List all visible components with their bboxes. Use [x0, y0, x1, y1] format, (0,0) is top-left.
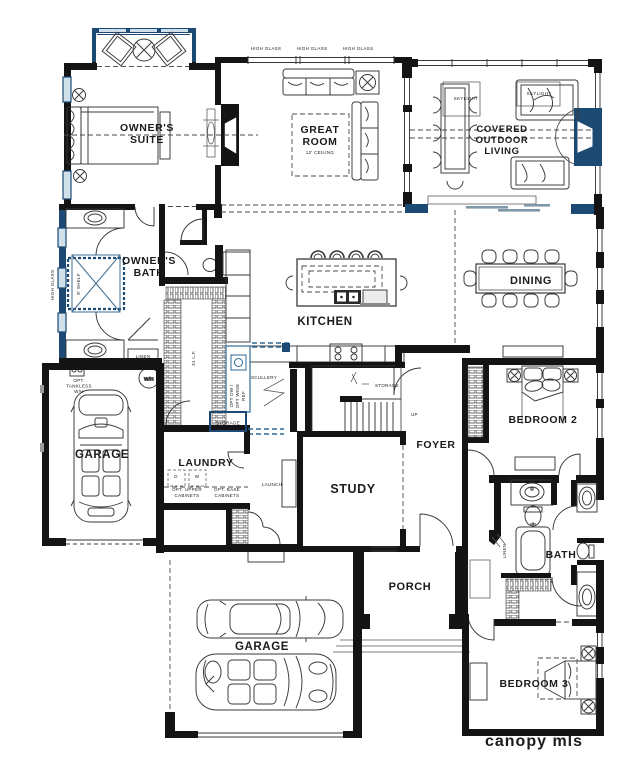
svg-text:LAUNCH: LAUNCH — [262, 482, 282, 487]
svg-text:PORCH: PORCH — [389, 581, 432, 593]
svg-text:CABINETS: CABINETS — [175, 493, 200, 498]
svg-text:LAUNDRY: LAUNDRY — [178, 457, 233, 469]
svg-text:TANKLESS: TANKLESS — [66, 384, 92, 389]
svg-text:OPT. BASE: OPT. BASE — [214, 487, 240, 492]
svg-text:W: W — [195, 474, 200, 479]
svg-text:31 L.F.: 31 L.F. — [191, 350, 196, 366]
svg-text:OUTDOOR: OUTDOOR — [476, 135, 529, 146]
svg-text:GREAT: GREAT — [301, 124, 340, 136]
svg-text:FOYER: FOYER — [416, 439, 455, 451]
svg-text:LINEN: LINEN — [502, 544, 507, 559]
svg-text:W/H: W/H — [144, 377, 154, 382]
svg-text:HIGH GLASS: HIGH GLASS — [251, 46, 282, 51]
svg-text:SKYLIGHT: SKYLIGHT — [454, 96, 479, 101]
svg-text:STORAGE: STORAGE — [375, 383, 399, 388]
svg-text:GARAGE: GARAGE — [235, 641, 289, 653]
svg-text:GARAGE: GARAGE — [75, 449, 129, 461]
svg-text:HIGH GLASS: HIGH GLASS — [297, 46, 328, 51]
svg-text:BATH: BATH — [134, 267, 165, 279]
svg-text:SCULLERY: SCULLERY — [251, 375, 277, 380]
svg-text:SUITE: SUITE — [130, 134, 164, 146]
svg-text:OPT DW /: OPT DW / — [229, 384, 234, 407]
svg-text:DINING: DINING — [510, 275, 552, 287]
svg-text:KITCHEN: KITCHEN — [297, 316, 352, 328]
svg-text:OPT. UPPER: OPT. UPPER — [172, 487, 202, 492]
svg-text:HIGH GLASS: HIGH GLASS — [50, 270, 55, 301]
svg-text:BATH: BATH — [546, 549, 577, 561]
svg-text:LIVING: LIVING — [484, 146, 519, 157]
svg-text:OWNER'S: OWNER'S — [120, 122, 174, 134]
svg-text:CABINETS: CABINETS — [215, 493, 240, 498]
svg-text:8' SHELF: 8' SHELF — [76, 273, 81, 295]
svg-text:BEDROOM 2: BEDROOM 2 — [509, 414, 578, 426]
svg-text:OWNER'S: OWNER'S — [122, 255, 176, 267]
svg-text:STORAGE: STORAGE — [216, 421, 240, 426]
svg-text:canopy mls: canopy mls — [485, 733, 583, 750]
svg-text:D: D — [174, 474, 178, 479]
svg-text:BEDROOM 3: BEDROOM 3 — [500, 678, 569, 690]
svg-text:HIGH GLASS: HIGH GLASS — [343, 46, 374, 51]
svg-text:REF: REF — [241, 391, 246, 401]
svg-text:12' CEILING: 12' CEILING — [306, 150, 335, 155]
svg-text:COVERED: COVERED — [476, 124, 527, 135]
svg-text:ROOM: ROOM — [302, 136, 337, 148]
svg-text:OPT WINE: OPT WINE — [235, 384, 240, 409]
svg-text:OPT.: OPT. — [73, 378, 84, 383]
svg-text:STUDY: STUDY — [330, 482, 375, 496]
svg-text:UP: UP — [411, 412, 418, 417]
